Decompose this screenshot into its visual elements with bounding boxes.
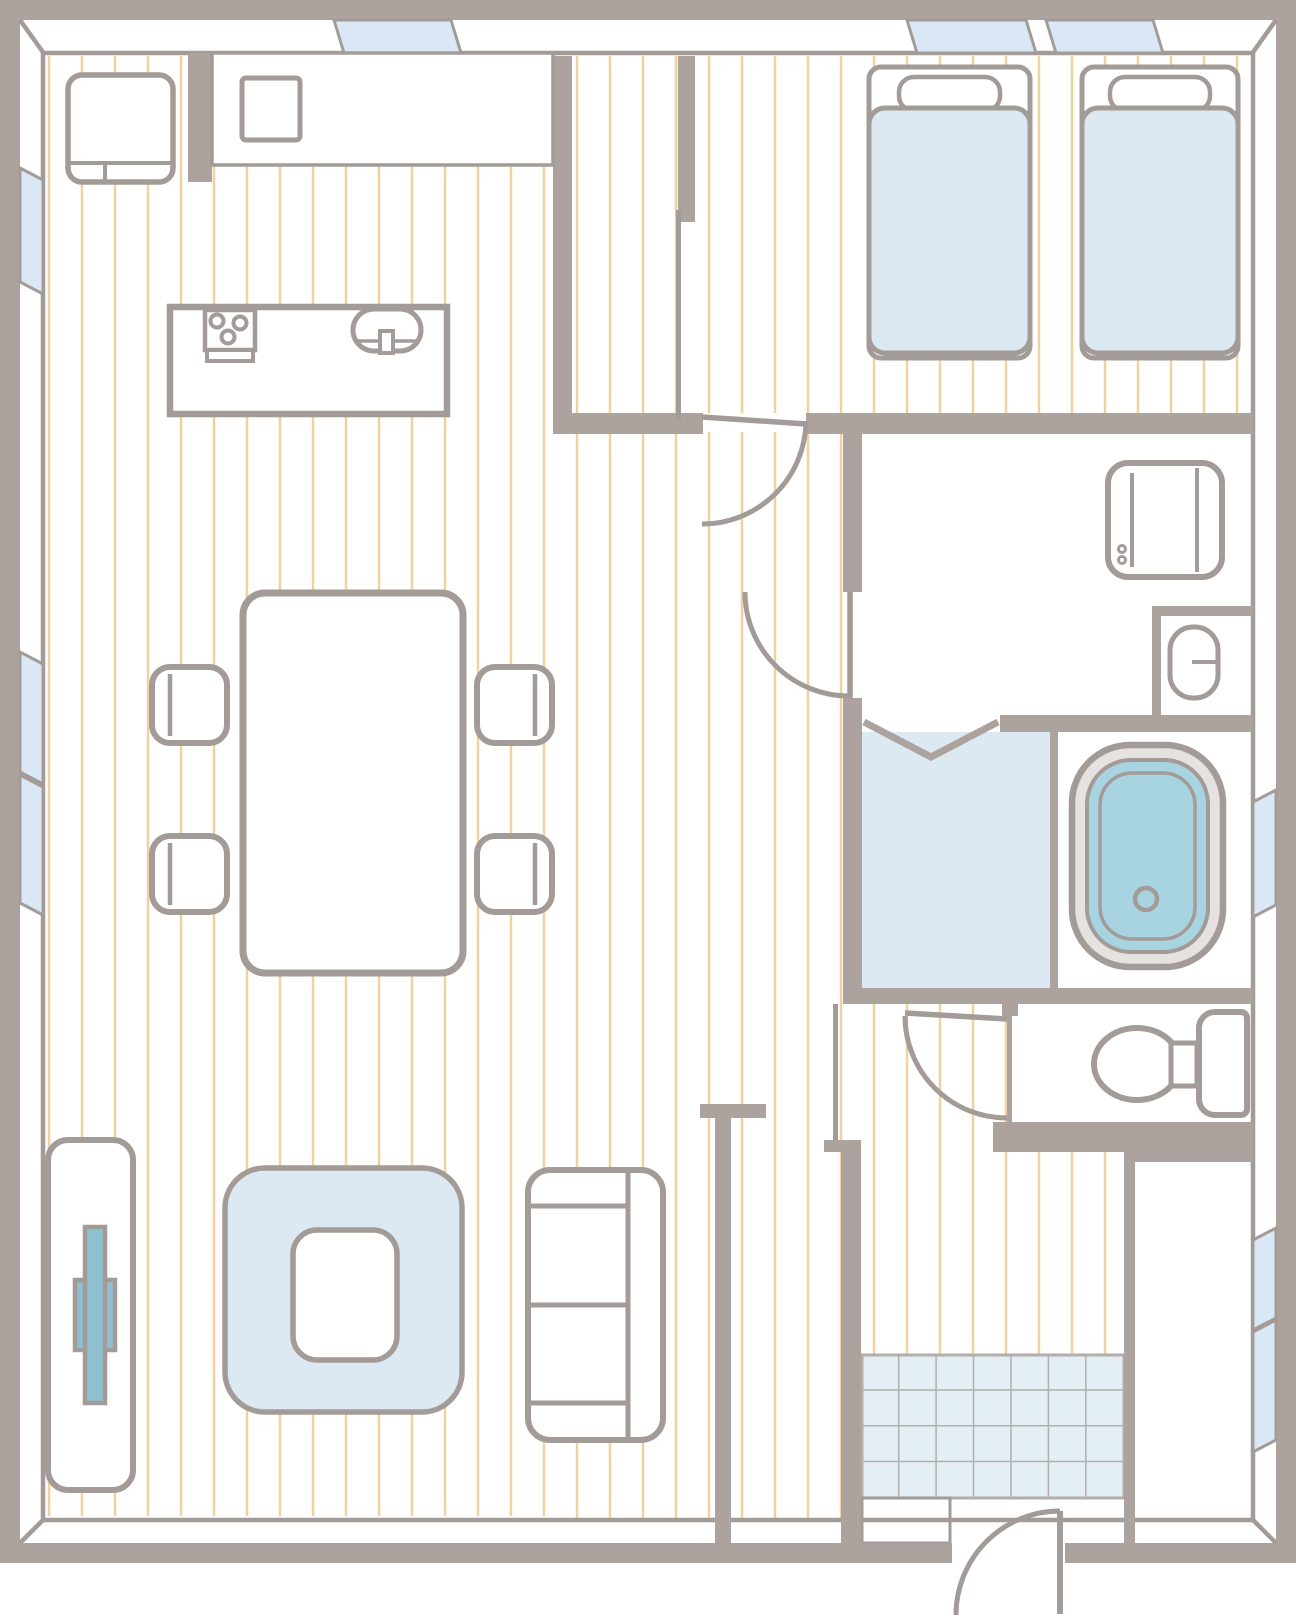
floor-plan-page [0,0,1296,1616]
floor-entry-closet [1135,1162,1253,1520]
bedroom-door-leaf [702,417,806,424]
floor-plan-drawing [0,0,1296,1616]
wall-entry-closet-top [1124,1148,1253,1162]
toilet-tank [1199,1012,1247,1115]
dining-table [243,593,463,973]
closet-sliding-panel [676,210,681,420]
stove-tray [207,350,253,361]
island-counter [170,307,447,414]
outer-wall-bottom-right [1065,1543,1296,1563]
vanity-sink [1170,627,1218,698]
wall-laundry-west-lower [843,698,862,1004]
toilet-bowl [1094,1028,1180,1100]
low-table [293,1230,397,1360]
refrigerator [68,75,173,182]
floor-genkan-tiles [862,1355,1124,1498]
bed-2 [1082,67,1238,358]
wall-closet-bedroom [678,56,695,222]
window-left-dining-lower [20,775,43,915]
wall-toilet-west-line [1007,1016,1012,1124]
duvet [1082,108,1238,353]
dining-chair-top-right [477,667,552,743]
floor-bathroom-washing [862,723,1050,988]
dining-chair-bottom-right [477,836,552,912]
window-right-closet-lower [1253,1320,1276,1452]
outer-wall-left [0,0,20,1563]
wall-partition [715,1104,731,1543]
wall-bath-top [1000,715,1253,732]
outer-wall-right [1276,0,1296,1563]
wall-toilet-bottom [993,1122,1253,1152]
bathtub [1072,745,1223,967]
stove [205,310,255,361]
bathroom [1072,745,1223,967]
wall-genkan-east [1124,1148,1135,1543]
window-right-bathtub [1253,790,1276,917]
wall-bedroom-south-east [806,413,1253,434]
duvet [869,108,1030,353]
counter-sink-square [242,78,300,140]
washing-machine [1108,463,1222,577]
outer-wall-bottom-left [0,1543,952,1563]
wall-fridge-stub [188,53,212,182]
tv-screen [85,1227,105,1403]
window-top-bedroom-1 [907,20,1036,53]
window-left-dining-upper [20,652,43,784]
window-left-kitchen [20,168,43,294]
window-top-kitchen [334,20,461,53]
wall-laundry-west-upper [843,434,862,592]
window-right-closet-upper [1253,1228,1276,1330]
island-sink-faucet [380,331,393,353]
wall-partition-stub [700,1104,766,1118]
toilet-seat-joint [1171,1043,1197,1086]
entrance-door-arc [956,1511,1060,1615]
outer-wall-top [0,0,1296,20]
window-top-bedroom-2 [1046,20,1163,53]
wall-hall-edge-line [833,1004,838,1140]
sofa [528,1170,663,1440]
wall-bath-bottom [843,988,1253,1004]
island-sink [353,309,421,353]
wall-bath-bottom-stub [1002,1004,1018,1016]
bed-1 [869,67,1030,358]
wall-bath-divider [1050,732,1058,988]
entrance-door [956,1511,1060,1615]
dining-chair-bottom-left [152,836,227,912]
dining-chair-top-left [152,667,227,743]
wall-vanity-top [1152,606,1253,616]
wall-kitchen-closet [553,56,572,413]
wall-genkan-west-stub [824,1140,841,1152]
wall-genkan-west [841,1140,861,1543]
refrigerator-body [68,75,173,182]
wall-vanity-left [1152,606,1161,715]
